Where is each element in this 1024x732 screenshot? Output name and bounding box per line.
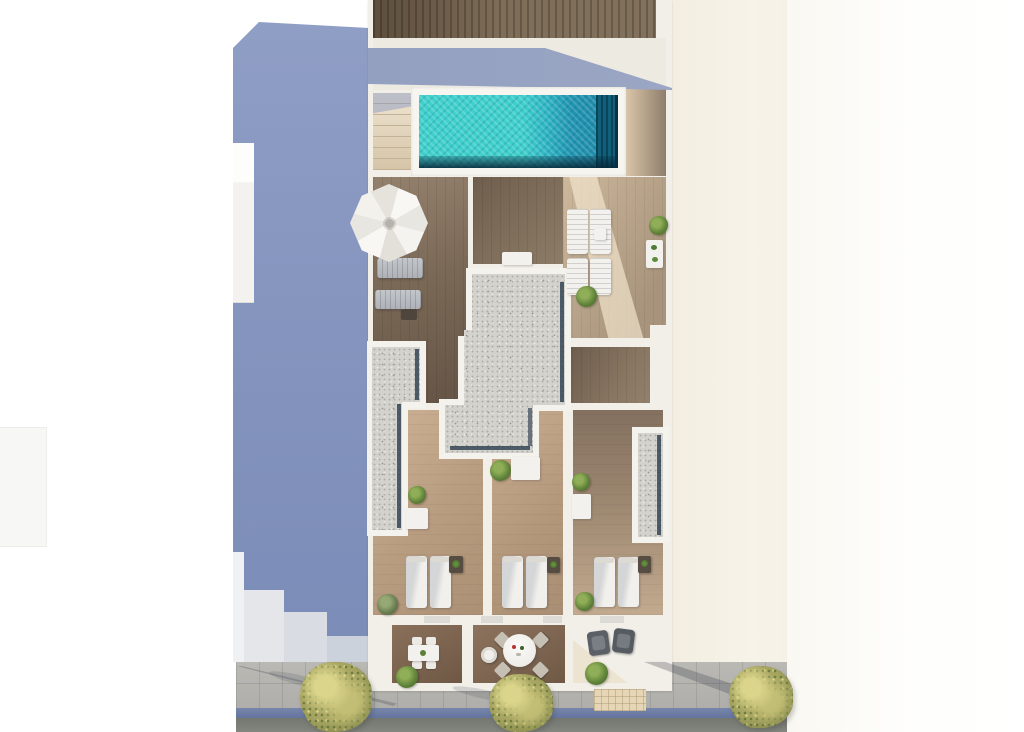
pool-side-deck — [626, 87, 666, 176]
dark-lounge-room — [473, 177, 563, 264]
nightstand-middle — [547, 557, 560, 573]
table-plant-dot-2 — [652, 257, 658, 262]
nightstand-plant — [452, 560, 460, 568]
terrace-b-pouf — [481, 647, 497, 663]
pool-steps-shadow — [373, 93, 411, 119]
sidewalk-tree-3 — [729, 666, 793, 728]
skylight-glass-edge-right — [657, 435, 661, 535]
nightstand-right — [638, 556, 651, 573]
terrace-c-armchair-1 — [586, 630, 610, 657]
terrace-a-chair-4 — [426, 661, 436, 669]
sun-deck-table — [646, 240, 663, 268]
door-threshold-2 — [481, 616, 503, 623]
upper-right-room — [563, 347, 650, 403]
table-grey-item — [516, 653, 521, 656]
terrace-a-chair-1 — [412, 637, 422, 645]
pool-dark-edge — [419, 156, 618, 168]
room-left-table — [406, 508, 428, 529]
bed-2 — [430, 556, 451, 608]
shadow-step-2 — [244, 590, 284, 662]
bed-3 — [502, 556, 523, 608]
skylight-glass-edge-left-bottom — [397, 404, 401, 528]
building-cast-shadow — [233, 20, 369, 662]
table-green-item — [520, 646, 524, 650]
sun-lounger-1 — [567, 209, 588, 254]
skylight-glass-edge-center-bottom — [450, 446, 530, 450]
nightstand-plant — [550, 561, 557, 568]
terrace-b-round-table — [503, 634, 536, 667]
terrace-c-armchair-2 — [612, 628, 636, 654]
armchair-cushion — [591, 635, 606, 651]
nightstand-left — [449, 556, 463, 573]
upper-right-wall-patch — [650, 325, 666, 338]
pergola-roof — [373, 0, 656, 38]
neighbor-facade-far — [787, 0, 1024, 732]
shadow-step-3 — [284, 612, 327, 662]
bed-1 — [406, 556, 427, 608]
room-middle-table — [511, 457, 540, 480]
door-threshold-3 — [543, 616, 562, 623]
sidewalk-tree-2 — [489, 674, 553, 732]
dark-side-table — [401, 309, 417, 320]
terrace-a-chair-2 — [426, 637, 436, 645]
pool-water — [419, 95, 618, 168]
terrace-a-table — [408, 645, 439, 661]
lounge-bench — [502, 252, 532, 265]
sidewalk-tree-1 — [300, 662, 372, 732]
pool-dark-edge-right — [615, 95, 618, 168]
bed-6 — [618, 557, 639, 607]
skylight-glass-edge-center-right — [560, 282, 564, 402]
shadow-step-4 — [327, 636, 369, 662]
neighbor-facade-strip — [672, 0, 787, 662]
parasol — [350, 184, 428, 262]
skylight-glass-edge-center-step — [528, 408, 532, 446]
bed-5 — [594, 557, 615, 607]
render-stage — [0, 0, 1024, 732]
paved-patio — [594, 689, 646, 711]
grey-lounger-2 — [375, 290, 421, 309]
door-threshold-1 — [424, 616, 450, 623]
table-red-item — [512, 645, 516, 649]
table-plant-dot — [651, 245, 657, 250]
shadow-step-1 — [233, 552, 244, 662]
parasol-hub — [385, 219, 394, 228]
skylight-glass-edge-left-top — [415, 349, 419, 400]
nightstand-plant — [641, 560, 648, 567]
grey-lounger-1 — [377, 258, 423, 278]
table-decor-dot — [420, 650, 426, 656]
shadow-white-wall — [233, 143, 254, 303]
door-threshold-4 — [600, 616, 624, 623]
armchair-cushion — [616, 633, 631, 648]
sun-deck-side-table — [594, 228, 606, 240]
left-ground-faint-wall — [0, 428, 46, 546]
pool-steps — [373, 93, 411, 170]
bed-4 — [526, 556, 547, 608]
room-right-table — [572, 494, 591, 519]
